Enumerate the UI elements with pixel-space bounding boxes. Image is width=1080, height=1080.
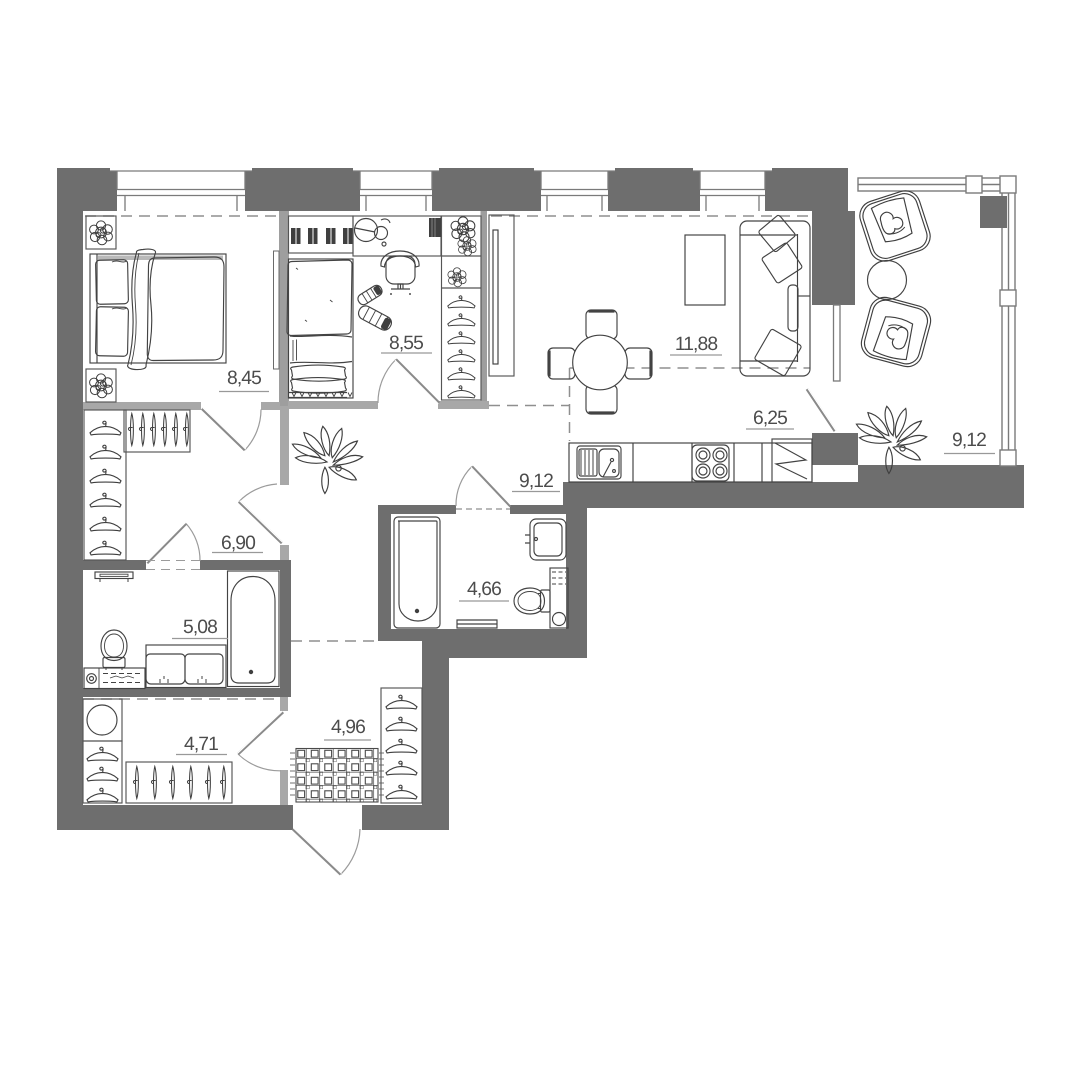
svg-text:5,08: 5,08 (183, 617, 217, 638)
svg-text:4,96: 4,96 (331, 717, 365, 738)
svg-text:6,25: 6,25 (753, 408, 787, 429)
svg-text:4,66: 4,66 (467, 579, 501, 600)
svg-text:4,71: 4,71 (184, 734, 218, 755)
svg-text:9,12: 9,12 (519, 471, 553, 492)
svg-text:8,45: 8,45 (227, 368, 261, 389)
svg-text:11,88: 11,88 (675, 334, 717, 355)
svg-text:9,12: 9,12 (952, 430, 986, 451)
svg-text:6,90: 6,90 (221, 533, 255, 554)
svg-text:8,55: 8,55 (389, 333, 423, 354)
